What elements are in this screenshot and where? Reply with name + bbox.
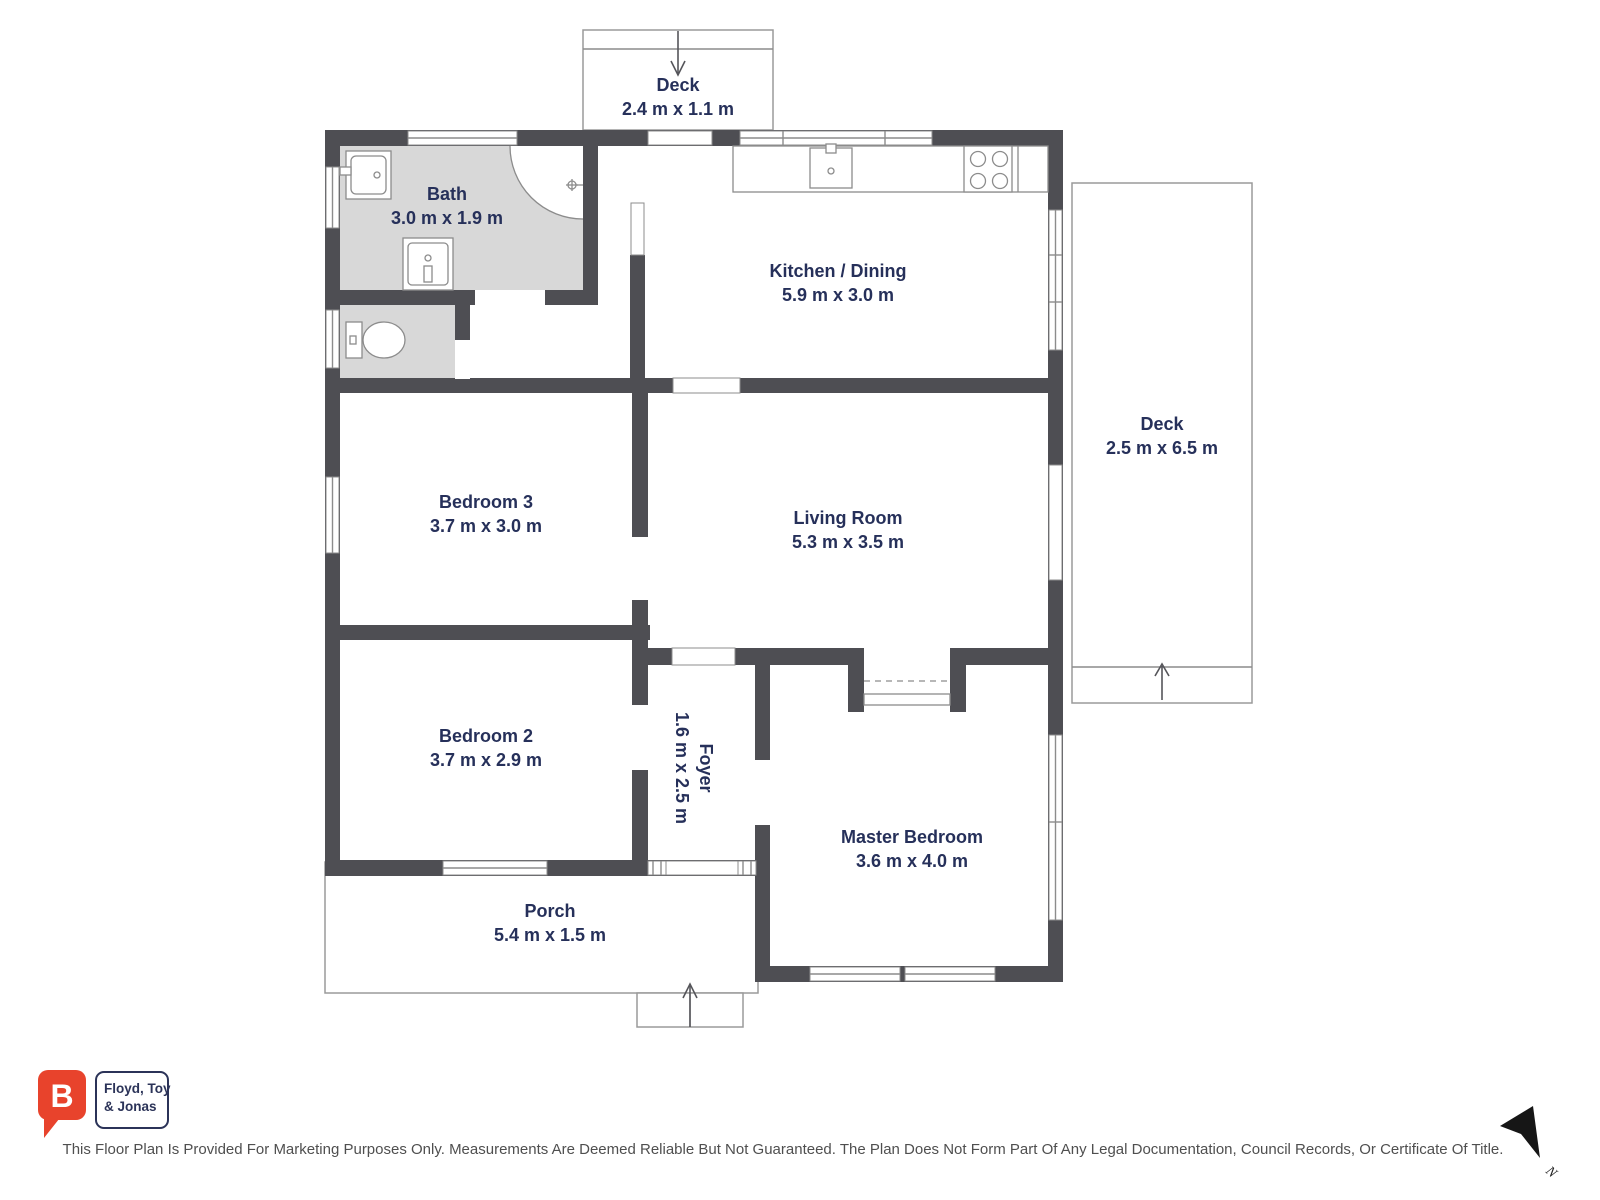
window: [326, 167, 339, 228]
wall-segment: [583, 146, 598, 305]
window: [408, 131, 517, 145]
room-name: Porch: [524, 901, 575, 921]
room-dims: 2.4 m x 1.1 m: [622, 99, 734, 119]
agency-name-line1: Floyd, Toy: [104, 1081, 171, 1096]
closet-side-wall: [848, 648, 864, 712]
closet-door-panel: [864, 694, 950, 705]
wall-segment: [325, 625, 650, 640]
front-door: [666, 861, 738, 875]
room-dims: 3.7 m x 2.9 m: [430, 750, 542, 770]
floor-plan-page: Deck 2.4 m x 1.1 m Bath 3.0 m x 1.9 m Ki…: [0, 0, 1600, 1200]
room-name: Foyer: [696, 743, 716, 792]
room-dims: 5.3 m x 3.5 m: [792, 532, 904, 552]
room-dims: 2.5 m x 6.5 m: [1106, 438, 1218, 458]
room-dims: 3.6 m x 4.0 m: [856, 851, 968, 871]
deck-door: [648, 131, 712, 145]
wall-segment: [632, 393, 648, 537]
room-name: Bedroom 2: [439, 726, 533, 746]
wc-door-opening: [455, 340, 470, 379]
room-name: Bedroom 3: [439, 492, 533, 512]
room-name: Deck: [656, 75, 700, 95]
room-dims: 5.9 m x 3.0 m: [782, 285, 894, 305]
wall-segment: [755, 825, 770, 982]
foyer-living-opening: [672, 648, 735, 665]
deck-sliding-door: [1049, 465, 1062, 580]
window: [810, 967, 900, 981]
room-name: Living Room: [794, 508, 903, 528]
room-dims: 3.0 m x 1.9 m: [391, 208, 503, 228]
kitchen-sink-icon: [810, 144, 852, 188]
room-name: Bath: [427, 184, 467, 204]
master-closet: [864, 681, 950, 705]
window: [443, 861, 547, 875]
closet-side-wall: [950, 648, 966, 712]
sidelight-window: [648, 861, 666, 875]
room-dims: 3.7 m x 3.0 m: [430, 516, 542, 536]
toilet-icon: [346, 322, 405, 358]
wall-segment: [966, 648, 1048, 665]
room-name: Kitchen / Dining: [770, 261, 907, 281]
agency-name-line2: & Jonas: [104, 1099, 157, 1114]
foyer-label-rotated: Foyer 1.6 m x 2.5 m: [672, 712, 716, 824]
window: [905, 967, 995, 981]
stove-icon: [964, 146, 1012, 192]
hall-door-leaf: [631, 203, 644, 255]
north-compass: N: [1500, 1106, 1560, 1182]
kitchen-fixtures: [733, 144, 1048, 192]
window: [1049, 735, 1062, 920]
room-name: Master Bedroom: [841, 827, 983, 847]
wall-segment: [632, 770, 648, 860]
wall-segment: [455, 305, 470, 340]
wall-segment: [632, 648, 672, 665]
bathtub-icon: [403, 238, 453, 290]
logo-letter: B: [50, 1078, 73, 1114]
window: [326, 310, 339, 368]
north-label: N: [1542, 1163, 1560, 1182]
room-dims: 1.6 m x 2.5 m: [672, 712, 692, 824]
floor-plan-canvas: Deck 2.4 m x 1.1 m Bath 3.0 m x 1.9 m Ki…: [0, 0, 1600, 1200]
room-name: Deck: [1140, 414, 1184, 434]
kitchen-living-opening: [673, 378, 740, 393]
bathroom-sink-icon: [340, 151, 391, 199]
wall-segment: [755, 648, 770, 760]
window: [740, 131, 932, 145]
agency-logo: B Floyd, Toy & Jonas: [38, 1070, 171, 1138]
wall-segment: [735, 648, 848, 665]
bath-door-opening: [475, 290, 545, 305]
sidelight-window: [738, 861, 756, 875]
wall-segment: [630, 255, 645, 393]
window: [326, 477, 339, 553]
logo-bubble-tail: [44, 1114, 63, 1138]
room-dims: 5.4 m x 1.5 m: [494, 925, 606, 945]
north-arrow-icon: [1500, 1106, 1540, 1158]
window: [1049, 210, 1062, 350]
wall-segment: [340, 290, 475, 305]
disclaimer-text: This Floor Plan Is Provided For Marketin…: [63, 1141, 1504, 1158]
